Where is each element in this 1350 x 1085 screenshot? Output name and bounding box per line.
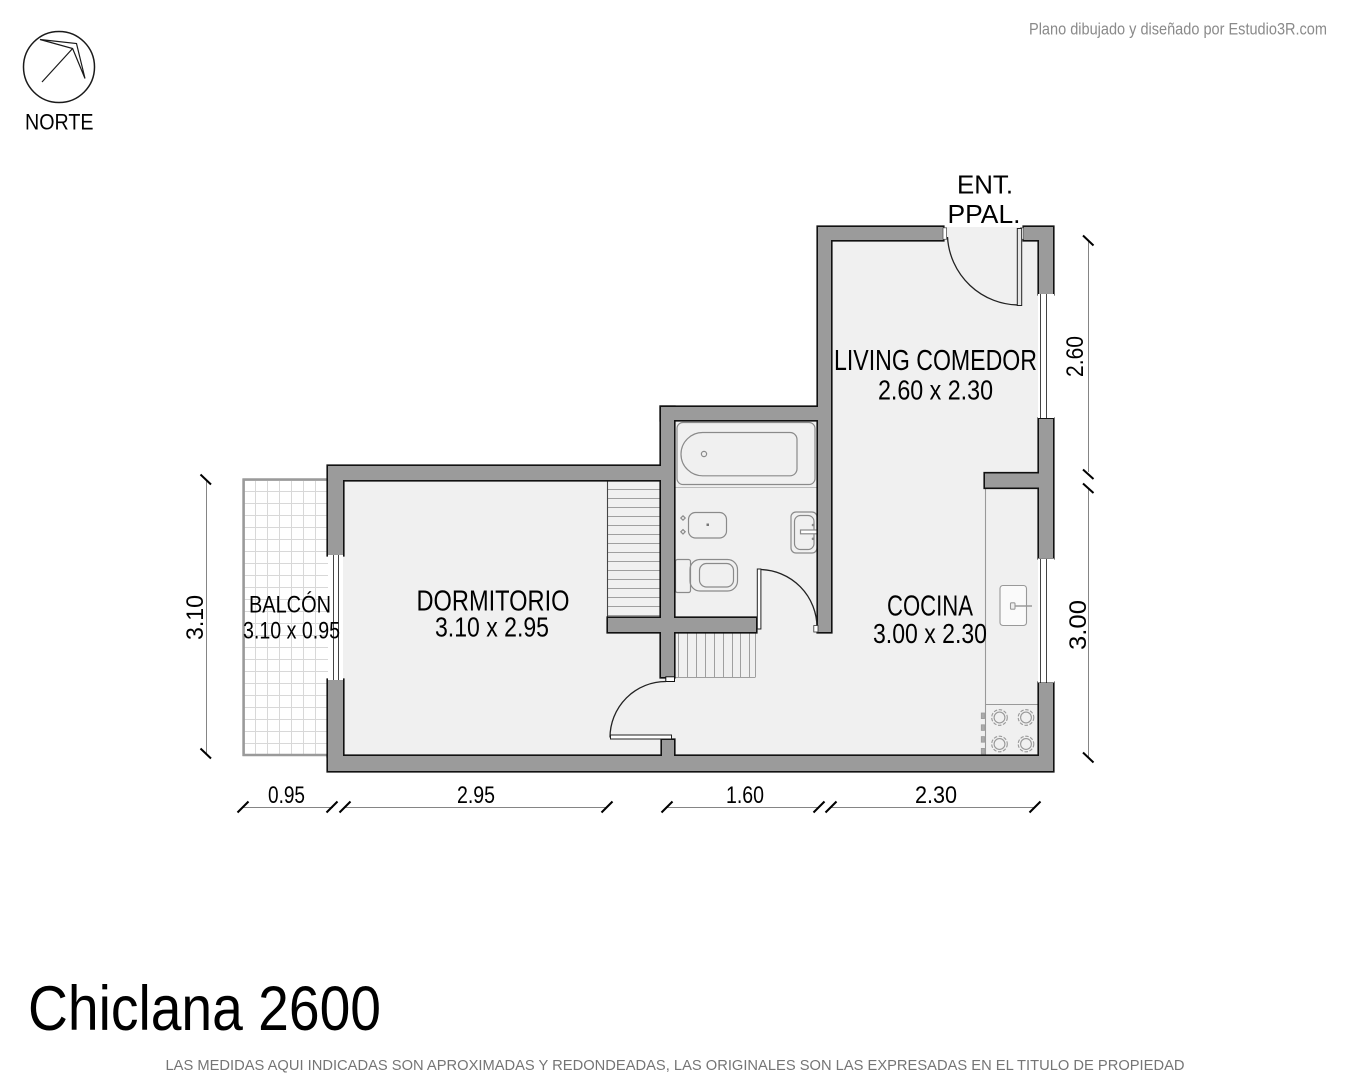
svg-text:0.95: 0.95 bbox=[268, 782, 305, 809]
svg-text:3.10 x 2.95: 3.10 x 2.95 bbox=[435, 612, 549, 643]
svg-text:Plano dibujado y diseñado por: Plano dibujado y diseñado por Estudio3R.… bbox=[1029, 20, 1327, 39]
svg-text:2.30: 2.30 bbox=[915, 782, 957, 809]
svg-text:3.00: 3.00 bbox=[1065, 600, 1092, 650]
svg-text:3.00 x 2.30: 3.00 x 2.30 bbox=[873, 618, 987, 649]
svg-text:3.10 x 0.95: 3.10 x 0.95 bbox=[243, 618, 340, 645]
svg-text:Chiclana 2600: Chiclana 2600 bbox=[28, 974, 381, 1044]
svg-text:3.10: 3.10 bbox=[182, 595, 209, 640]
svg-text:LIVING COMEDOR: LIVING COMEDOR bbox=[834, 345, 1037, 377]
svg-text:NORTE: NORTE bbox=[25, 110, 94, 135]
svg-text:LAS MEDIDAS AQUI INDICADAS SON: LAS MEDIDAS AQUI INDICADAS SON APROXIMAD… bbox=[166, 1057, 1185, 1074]
svg-text:ENT.: ENT. bbox=[957, 172, 1013, 200]
svg-text:2.95: 2.95 bbox=[457, 782, 495, 809]
svg-text:1.60: 1.60 bbox=[726, 782, 764, 809]
svg-text:PPAL.: PPAL. bbox=[948, 201, 1021, 229]
svg-text:BALCÓN: BALCÓN bbox=[249, 592, 331, 619]
svg-text:2.60 x 2.30: 2.60 x 2.30 bbox=[878, 375, 993, 406]
svg-text:2.60: 2.60 bbox=[1062, 336, 1089, 377]
